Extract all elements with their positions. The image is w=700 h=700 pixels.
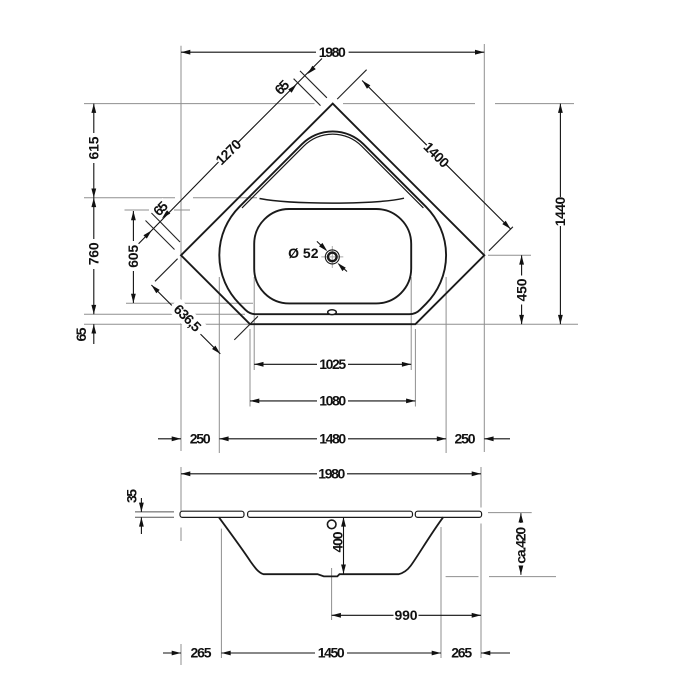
svg-text:65: 65	[150, 198, 171, 219]
svg-text:990: 990	[395, 607, 418, 623]
svg-text:605: 605	[125, 245, 141, 268]
svg-text:760: 760	[86, 242, 102, 265]
svg-text:265: 265	[451, 645, 472, 661]
svg-text:265: 265	[191, 645, 212, 661]
svg-text:65: 65	[73, 327, 89, 341]
svg-text:65: 65	[271, 76, 292, 97]
svg-text:1980: 1980	[318, 466, 345, 482]
svg-text:35: 35	[123, 489, 139, 503]
svg-text:400: 400	[329, 531, 345, 552]
svg-text:450: 450	[513, 278, 529, 301]
svg-text:615: 615	[86, 136, 102, 159]
svg-text:ca.420: ca.420	[513, 527, 529, 564]
svg-text:1480: 1480	[319, 431, 346, 447]
svg-text:250: 250	[190, 431, 211, 447]
svg-text:1440: 1440	[552, 197, 568, 227]
svg-text:250: 250	[455, 431, 476, 447]
svg-text:1025: 1025	[319, 356, 346, 372]
svg-text:1080: 1080	[319, 393, 346, 409]
svg-text:1980: 1980	[319, 44, 346, 60]
svg-text:Ø 52: Ø 52	[288, 245, 319, 261]
svg-text:1450: 1450	[318, 645, 345, 661]
